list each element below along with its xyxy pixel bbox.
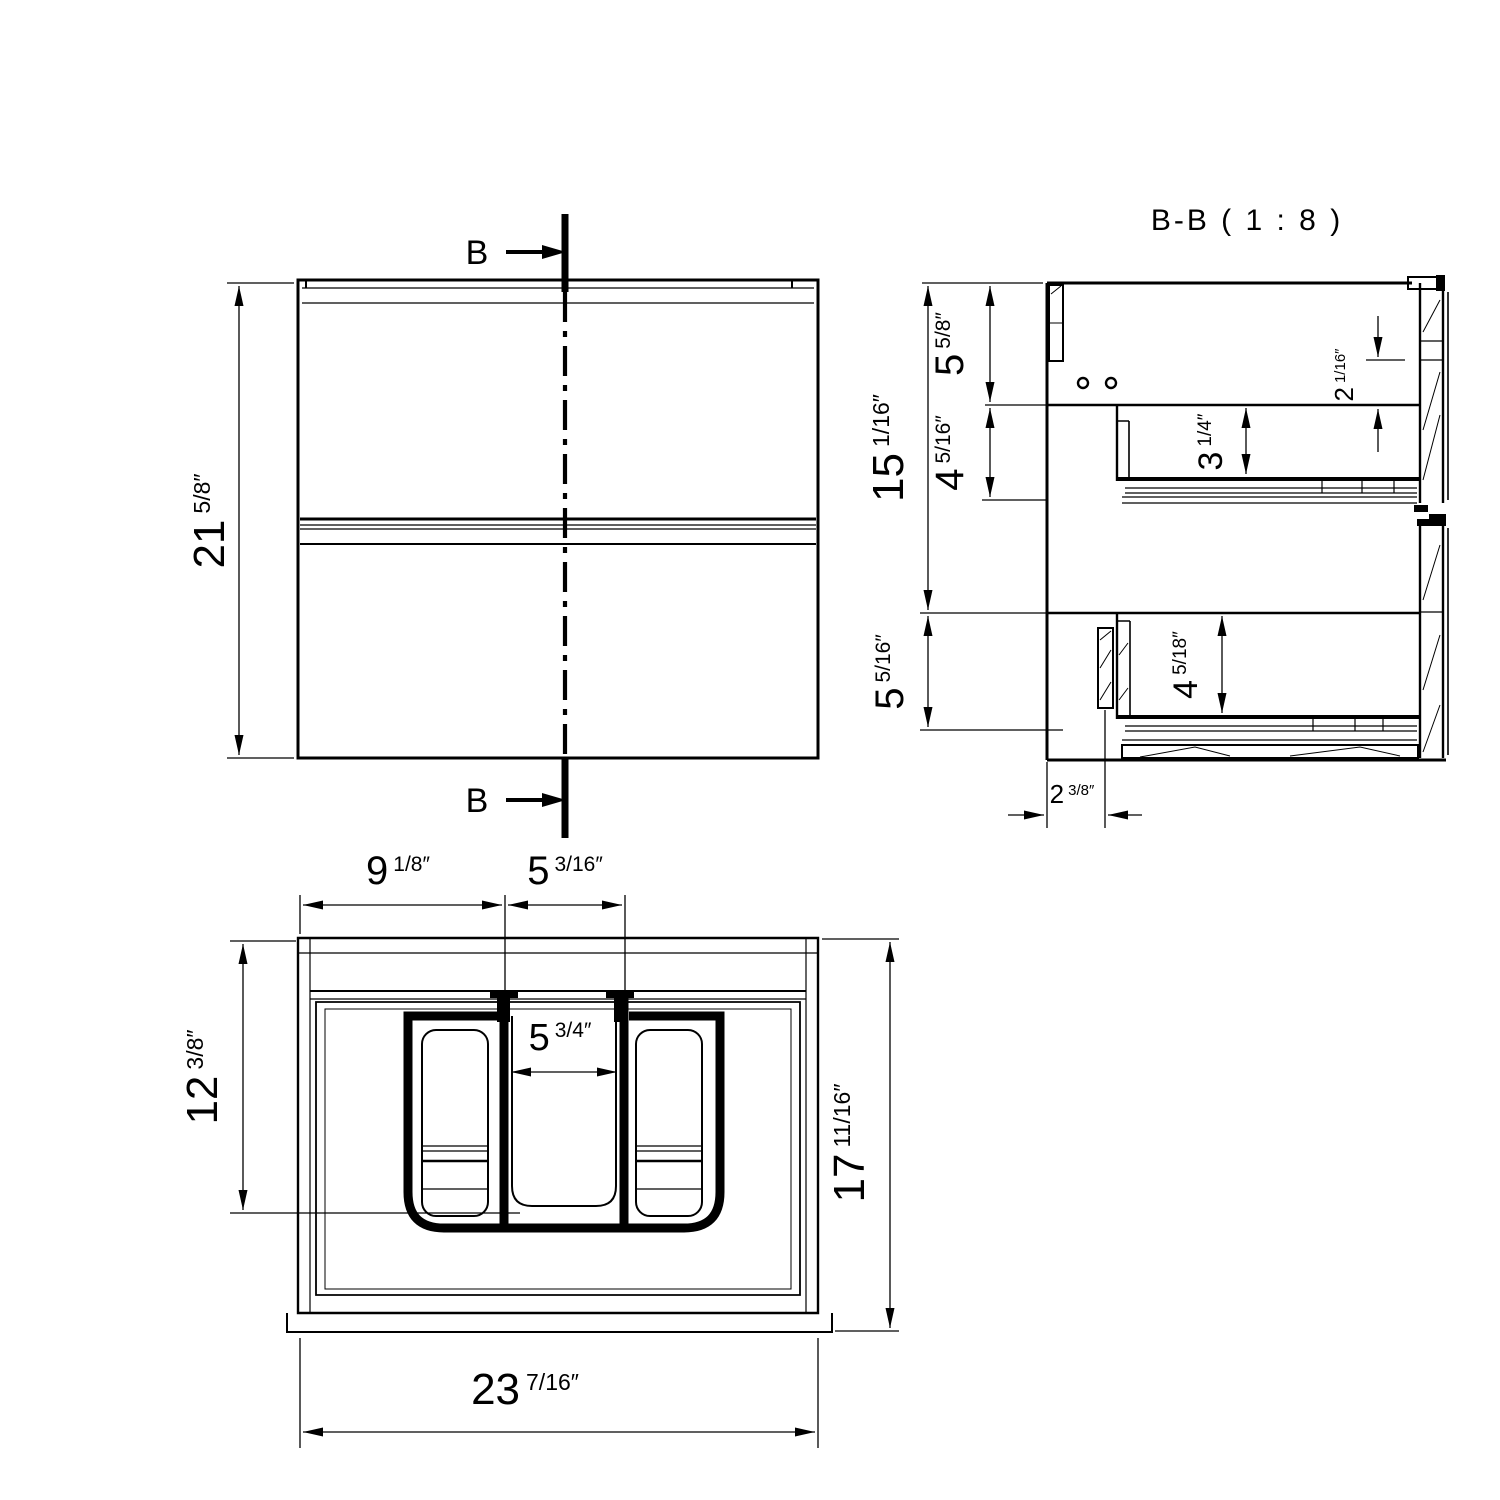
svg-text:53/4″: 53/4″ — [529, 1017, 592, 1059]
sink-left-compartment — [422, 1030, 488, 1216]
dimension-sec-drawer1: 45/16″ — [928, 408, 990, 497]
section-view: B-B ( 1 : 8 ) — [864, 204, 1448, 828]
svg-text:31/4″: 31/4″ — [1192, 413, 1230, 470]
screw-hole-2 — [1106, 378, 1116, 388]
plan-front-strip — [287, 1313, 832, 1332]
section-upper-drawer-front — [1408, 275, 1448, 503]
dimension-plan-depth-inner: 123/8″ — [178, 941, 520, 1213]
dimension-sec-d2-inner: 45/18″ — [1167, 616, 1222, 713]
dimension-plan-width: 237/16″ — [300, 1338, 818, 1448]
sink-outer-rim — [408, 1016, 720, 1228]
svg-text:91/8″: 91/8″ — [366, 849, 430, 893]
vanity-technical-drawing: B B 215/8″ B-B ( 1 : 8 ) — [0, 0, 1500, 1500]
drawer-gap-clip-1 — [1414, 505, 1428, 512]
front-top-band-lines — [300, 288, 816, 529]
dimension-plan-bowl: 53/4″ — [511, 1017, 617, 1072]
dimension-sec-reveal: 21/16″ — [1329, 316, 1405, 452]
plan-inner-frame — [316, 1002, 800, 1295]
dimension-sec-bottom-inset: 23/8″ — [1008, 710, 1142, 828]
section-marker-label-bottom: B — [466, 782, 489, 820]
front-band-edges — [300, 281, 816, 544]
svg-text:21/16″: 21/16″ — [1329, 348, 1359, 402]
dimension-plan-mid: 53/16″ — [508, 849, 622, 905]
plan-view: 91/8″ 53/16″ 53/4″ 123/8″ 1711 — [178, 849, 899, 1448]
section-lower-drawer-front — [1417, 519, 1448, 758]
svg-text:45/18″: 45/18″ — [1167, 631, 1205, 699]
sink-center-bowl — [512, 1016, 616, 1206]
svg-text:23/8″: 23/8″ — [1050, 779, 1095, 809]
screw-hole-1 — [1078, 378, 1088, 388]
svg-text:53/16″: 53/16″ — [527, 849, 603, 893]
svg-text:123/8″: 123/8″ — [178, 1029, 227, 1124]
svg-text:237/16″: 237/16″ — [471, 1365, 579, 1414]
section-marker-label-top: B — [466, 234, 489, 272]
sink-right-compartment — [636, 1030, 702, 1216]
cabinet-bottom-board — [1122, 745, 1418, 758]
dimension-front-height: 215/8″ — [185, 283, 294, 758]
section-view-title: B-B ( 1 : 8 ) — [1151, 204, 1343, 237]
front-view: B B 215/8″ — [185, 214, 818, 838]
svg-text:45/16″: 45/16″ — [928, 415, 972, 491]
dimension-sec-d1-inner: 31/4″ — [1192, 408, 1246, 474]
svg-text:151/16″: 151/16″ — [864, 394, 913, 502]
dim-front-height-label: 215/8″ — [185, 473, 234, 568]
svg-text:55/16″: 55/16″ — [868, 634, 912, 710]
svg-text:1711/16″: 1711/16″ — [825, 1084, 874, 1203]
dimension-plan-depth: 1711/16″ — [822, 939, 899, 1331]
dimension-sec-top-gap: 55/8″ — [928, 286, 990, 402]
sink-clip-left — [490, 990, 518, 998]
dimension-sec-lower: 55/16″ — [868, 616, 928, 727]
svg-text:55/8″: 55/8″ — [928, 312, 972, 376]
plan-cabinet-outline — [298, 938, 818, 1313]
sink-clip-right — [606, 990, 634, 998]
